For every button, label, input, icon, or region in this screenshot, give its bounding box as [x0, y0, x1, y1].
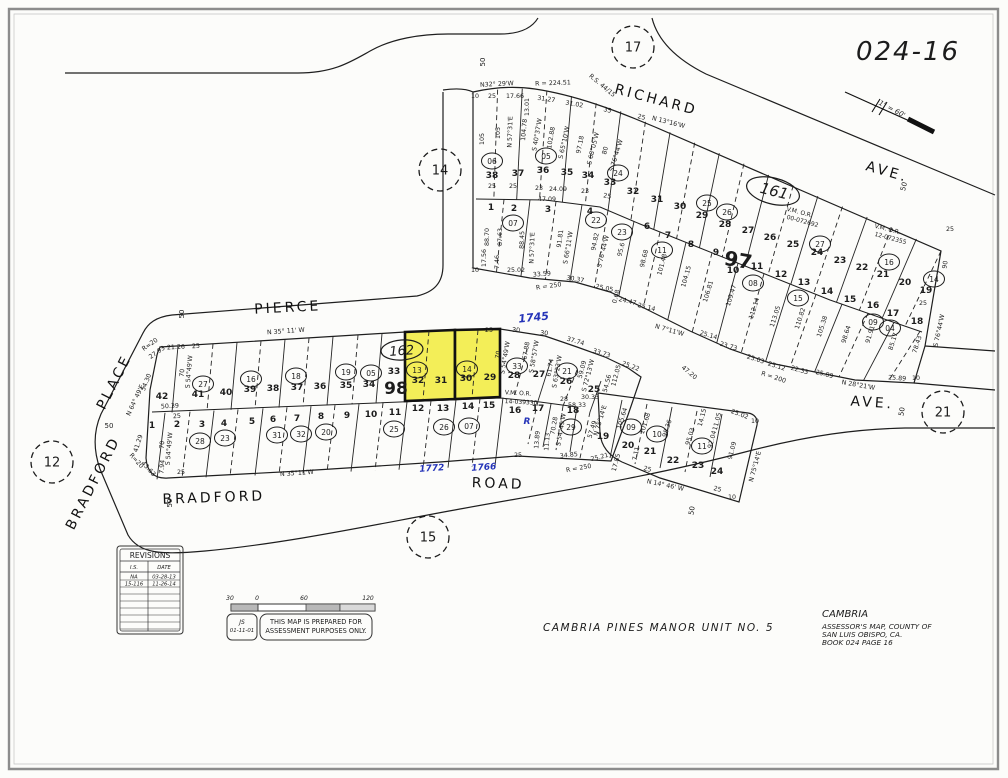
dimension-label: 30.37 [566, 275, 585, 285]
dimension-label: 43.63 [139, 460, 156, 478]
lot-number: 31 [435, 376, 448, 386]
dimension-label: 87.63 [497, 228, 504, 246]
dimension-label: 25.02 [507, 267, 525, 274]
dimension-label: 30 [540, 330, 549, 338]
parcel-number: 16 [246, 375, 256, 384]
lot-number: 30 [674, 202, 687, 212]
dimension-label: 91.09 [727, 441, 738, 460]
road-width-label: 50 [687, 506, 696, 516]
road-width-label: 50 [166, 499, 174, 508]
dimension-label: 109.47 [725, 284, 738, 307]
dimension-label: 21.26 [167, 344, 185, 352]
revision-row-date: 11-26-14 [152, 582, 176, 588]
agency-name: CAMBRIA [822, 609, 868, 620]
road-width-label: 50 [899, 181, 909, 192]
dimension-label: 23.73 [719, 341, 738, 353]
lot-number: 20 [622, 441, 635, 451]
lot-boundary-line [303, 406, 311, 473]
parcel-number: 10 [652, 430, 662, 439]
dimension-label: 112.05 [610, 364, 622, 387]
road-width-label: 50 [897, 407, 906, 417]
dimension-label: R = 200 [760, 370, 787, 385]
lot-number: 12 [775, 270, 788, 280]
street-label: ROAD [471, 475, 524, 493]
dimension-label: 33.59 [533, 270, 551, 278]
dimension-label: 95.03 [684, 427, 696, 446]
parcel-number: 07 [464, 422, 474, 431]
dimension-label: N 57°31'E [505, 116, 514, 148]
dimension-label: 41.29 [132, 434, 144, 453]
lot-number: 7 [665, 231, 671, 241]
lot-boundary-line [230, 409, 238, 476]
revisions-col-is: I.S. [130, 565, 138, 571]
lot-boundary-line [327, 337, 333, 406]
map-title: CAMBRIA PINES MANOR UNIT NO. 5 [543, 622, 774, 634]
lot-number: 13 [437, 404, 450, 414]
dimension-label: 98.68 [639, 249, 650, 268]
parcel-number: 11 [697, 442, 707, 451]
dimension-label: 25 [173, 413, 181, 420]
lot-number: 42 [156, 392, 169, 402]
assessor-map-page: 1" = 60' 024-16 CAMBRIA PINES MANOR UNIT… [0, 0, 1008, 778]
lot-boundary-line [677, 143, 695, 239]
lot-number: 21 [877, 270, 890, 280]
dimension-label: 98.64 [840, 325, 852, 344]
lot-boundary-line [654, 132, 670, 229]
lot-number: 1 [488, 203, 494, 213]
parcel-number: 09 [868, 318, 878, 327]
lot-number: 15 [844, 295, 857, 305]
dimension-label: 106.81 [702, 280, 715, 303]
parcel-number: 29 [566, 423, 576, 432]
lot-number: 16 [867, 301, 880, 311]
scale-tick: 30 [226, 595, 234, 602]
parcel-number: 16 [884, 258, 894, 267]
dimension-label: 30 [512, 327, 520, 334]
dimension-label: 13.89 [533, 431, 542, 450]
lot-boundary-line [351, 404, 359, 472]
dimension-label: 25 [485, 327, 493, 334]
dimension-label: 17.56 [481, 249, 488, 267]
dimension-label: 105 [479, 133, 486, 145]
lot-number: 40 [220, 388, 233, 398]
scale-tick: 60 [300, 595, 308, 602]
dimension-label: 7.11 [632, 446, 642, 461]
dimension-label: 88.45 [519, 231, 527, 249]
dimension-label: 11.13 [543, 433, 552, 452]
dimension-label: 25.02 [730, 408, 749, 421]
dimension-label: 28 [560, 396, 568, 403]
dimension-label: 25.14 [637, 302, 656, 313]
parcel-number: 31 [272, 431, 282, 440]
revisions-col-date: DATE [157, 565, 171, 571]
dimension-label: 97.18 [575, 135, 586, 154]
lot-number: 37 [512, 169, 525, 179]
dimension-label: 23 [535, 185, 543, 192]
lot-boundary-line [279, 340, 285, 408]
lot-number: 12 [412, 404, 425, 414]
dimension-label: 112.14 [748, 297, 761, 320]
dimension-label: N 7°11'W [654, 322, 686, 338]
lot-number: 18 [911, 317, 924, 327]
lot-number: 34 [363, 380, 376, 390]
parcel-number: 33 [512, 362, 522, 371]
street-label: PIERCE [254, 298, 322, 317]
dimension-label: S 68°05'W [585, 131, 601, 166]
dimension-label: 25.12 [767, 360, 786, 372]
dimension-label: 7.46 [494, 255, 501, 269]
dimension-label: 10 [912, 375, 920, 382]
revision-row-is: 15-116 [125, 582, 144, 588]
lot-number: 6 [644, 222, 650, 232]
dimension-label: 25 [946, 226, 954, 233]
road-edge-east-2 [914, 383, 995, 390]
page-border [9, 9, 998, 769]
block-number: 162 [389, 343, 415, 360]
revisions-title: REVISIONS [130, 551, 171, 560]
lot-boundary-line [352, 335, 358, 404]
north-arrow-scale: 1" = 60' [877, 99, 906, 120]
dimension-label: N 35°11'W [280, 468, 315, 478]
lot-number: 31 [651, 195, 664, 205]
map-junction-number: 14 [432, 164, 449, 179]
dimension-label: 47.09 [538, 196, 556, 203]
dimension-label: 13.01 [524, 98, 531, 116]
lot-number: 37 [291, 383, 304, 393]
disclaimer-line-1: THIS MAP IS PREPARED FOR [269, 618, 362, 626]
parcel-number: 26 [439, 423, 449, 432]
lot-number: 25 [787, 240, 800, 250]
lot-number: 8 [688, 240, 694, 250]
dimension-label: 105.38 [816, 315, 829, 338]
lot-number: 11 [389, 408, 402, 418]
parcel-number: 28 [195, 437, 205, 446]
lot-number: 20 [899, 278, 912, 288]
sheet-number: 024-16 [856, 37, 960, 67]
dimension-label: 23 [581, 188, 589, 195]
dimension-label: 25 [713, 485, 722, 494]
lot-number: 24 [711, 467, 724, 477]
lot-number: 6 [270, 415, 276, 425]
assessor-map-canvas: 1" = 60' 024-16 CAMBRIA PINES MANOR UNIT… [0, 0, 1008, 778]
dimension-label: 10 [728, 494, 736, 501]
map-junction-number: 21 [935, 406, 952, 421]
lot-number: 3 [545, 205, 551, 215]
lot-number: 9 [344, 411, 350, 421]
street-label: RICHARD [613, 81, 699, 119]
parcel-number: 05 [541, 152, 551, 161]
dimension-label: 25.21 [590, 452, 609, 463]
lot-number: 11 [751, 262, 764, 272]
lot-number: 33 [388, 367, 401, 377]
lot-number: 17 [887, 309, 900, 319]
dimension-label: 33.73 [592, 347, 611, 359]
parcel-number: 08 [748, 279, 758, 288]
parcel-number: 23 [220, 434, 230, 443]
dimension-label: 47.20 [680, 364, 698, 381]
scale-tick: 120 [362, 595, 374, 602]
parcel-number: 27 [198, 380, 208, 389]
parcel-number: 15 [793, 294, 803, 303]
dimension-label: 25.89 [888, 374, 906, 382]
parcel-number: 23 [617, 228, 627, 237]
dimension-label: 78.43 [911, 335, 923, 354]
parcel-number: 13 [412, 366, 422, 375]
road-width-label: 50 [105, 422, 114, 430]
lot-number: 26 [764, 233, 777, 243]
lot-number: 28 [508, 371, 521, 381]
dimension-label: 25 [514, 452, 522, 459]
lot-number: 36 [314, 382, 327, 392]
map-junction-number: 17 [625, 41, 642, 56]
dimension-label: 25 [488, 93, 496, 100]
dimension-label: 25 [488, 183, 496, 190]
lot-boundary-line [839, 313, 868, 377]
lot-number: 2 [511, 204, 517, 214]
parcel-number: 26 [722, 208, 732, 217]
dimension-label: 10 [471, 93, 479, 100]
dimension-label: 22.33 [790, 365, 809, 377]
lot-number: 32 [627, 187, 640, 197]
dimension-label: N 57°31'E [527, 232, 536, 264]
parcel-number: 27 [815, 240, 825, 249]
dimension-label: 113.05 [769, 305, 782, 328]
parcel-number: 20 [321, 428, 331, 437]
revision-row-date: 03-28-13 [152, 575, 176, 581]
dimension-label: N 35° 11' W [267, 326, 306, 337]
block-number: 97 [722, 246, 754, 274]
lot-number: 15 [483, 401, 496, 411]
lot-number: 23 [834, 256, 847, 266]
lot-number: 29 [696, 211, 709, 221]
dimension-label: 88.70 [484, 228, 491, 246]
road-width-label: 50 [479, 58, 487, 67]
parcel-number: 09 [626, 423, 636, 432]
dimension-label: 35 [603, 106, 612, 115]
parcel-number: 18 [291, 372, 301, 381]
dimension-label: S 40°37'W [530, 117, 544, 152]
parcel-number: 24 [613, 169, 623, 178]
lot-number: 5 [249, 417, 255, 427]
dimension-label: 94.82 [590, 232, 601, 251]
lot-number: 21 [644, 447, 657, 457]
dimension-label: 25 [919, 300, 927, 307]
dimension-label: 85.17 [887, 332, 899, 351]
parcel-number: 25 [389, 425, 399, 434]
dimension-label: 7.94 [158, 460, 166, 475]
lot-number: 33 [604, 178, 617, 188]
lot-number: 14 [821, 287, 834, 297]
lot-number: 1 [149, 421, 155, 431]
lot-boundary-line [279, 407, 287, 474]
map-junction-number: 15 [420, 531, 437, 546]
lot-number: 35 [561, 168, 574, 178]
dimension-label: 80 [601, 146, 610, 156]
lot-number: 28 [719, 220, 732, 230]
lot-number: 23 [692, 461, 705, 471]
lot-number: 22 [856, 263, 869, 273]
lot-number: 19 [920, 286, 933, 296]
parcel-number: 06 [487, 157, 497, 166]
lot-number: 3 [199, 420, 205, 430]
lot-number: 38 [486, 171, 499, 181]
road-edge-connector [443, 89, 473, 92]
block-number: 98 [384, 379, 408, 399]
dimension-label: 14.15 [697, 408, 708, 427]
lot-number: 13 [798, 278, 811, 288]
dimension-label: 25.03 [746, 353, 765, 365]
dimension-label: 110.82 [794, 307, 807, 330]
lot-number: 8 [318, 412, 324, 422]
dimension-label: 104.78 [520, 119, 529, 142]
lot-number: 22 [667, 456, 680, 466]
dimension-label: 25 [603, 192, 612, 200]
lot-number: 2 [174, 420, 180, 430]
dimension-label: 10 [751, 418, 759, 425]
dimension-label: 25.22 [621, 360, 640, 373]
street-label: PLACE [94, 352, 135, 412]
dimension-label: S 65°10'W [557, 125, 572, 160]
dimension-label: 102.88 [546, 126, 557, 149]
dimension-label: 25.89 [815, 369, 834, 380]
parcel-number: 21 [562, 367, 572, 376]
lot-number: 29 [484, 373, 497, 383]
dimension-label: 58.33 [568, 402, 586, 409]
lot-number: 16 [509, 406, 522, 416]
lot-number: 34 [582, 171, 595, 181]
handwritten-annotation: R [524, 417, 531, 427]
dimension-label: 25 [192, 343, 200, 350]
dimension-label: R = 250 [536, 281, 562, 292]
lot-number: 4 [221, 419, 227, 429]
lot-number: 10 [365, 410, 378, 420]
agency-line-3: BOOK 024 PAGE 16 [822, 638, 893, 647]
parcel-number: 22 [591, 216, 601, 225]
lot-number: 35 [340, 381, 353, 391]
dimension-label: R = 224.51 [535, 79, 571, 87]
lot-boundary-line [495, 398, 503, 466]
lot-number: 27 [742, 226, 755, 236]
lot-boundary-line [231, 342, 237, 409]
lot-number: 36 [537, 166, 550, 176]
dimension-label: 24.09 [549, 186, 567, 193]
revision-row-is: NA [130, 575, 138, 581]
dimension-label: R = 250 [565, 463, 592, 474]
dimension-label: 31.27 [537, 95, 556, 104]
handwritten-annotation: 1772 [419, 463, 445, 475]
dimension-label: 30.33 [581, 394, 599, 401]
street-label: BRADFORD [162, 488, 265, 508]
parcel-number: 04 [885, 324, 895, 333]
dimension-label: 25 [509, 183, 517, 190]
scale-tick: 0 [255, 595, 259, 602]
lot-number: 14 [462, 402, 475, 412]
dimension-label: 37.74 [566, 336, 585, 348]
dimension-label: S 76°44'W [932, 313, 947, 348]
parcel-number: 11 [657, 246, 667, 255]
dimension-label: 91.81 [556, 229, 565, 248]
block-number: 161 [758, 179, 790, 203]
lot-boundary-line [303, 338, 309, 407]
stamp-initials: JS [238, 619, 245, 626]
handwritten-annotation: 1745 [518, 309, 550, 325]
parcel-number: 14 [929, 275, 939, 284]
dimension-label: R.S. 44/15 [587, 73, 616, 99]
parcel-number: 07 [508, 219, 518, 228]
street-label: AVE. [850, 394, 895, 413]
lot-boundary-line [255, 408, 263, 475]
dimension-label: 25.05 [595, 283, 614, 294]
map-junction-number: 12 [44, 456, 61, 471]
dimension-label: 25 [177, 469, 185, 476]
disclaimer-line-2: ASSESSMENT PURPOSES ONLY. [265, 627, 366, 635]
initials-stamp-box [227, 614, 257, 640]
dimension-label: 31.02 [565, 100, 584, 110]
stamp-date: 01-11-01 [230, 628, 254, 634]
dimension-label: 10 [471, 267, 479, 274]
dimension-label: 50.39 [161, 403, 179, 411]
dimension-label: 25 [643, 465, 652, 474]
dimension-label: 104.15 [680, 265, 693, 288]
parcel-number: 19 [341, 368, 351, 377]
lot-number: 9 [713, 248, 719, 258]
lot-boundary-line [815, 304, 842, 372]
handwritten-annotation: 1766 [471, 462, 497, 474]
dimension-label: 101.48 [656, 253, 668, 276]
dimension-label: 95.6 [616, 242, 626, 257]
parcel-number: 25 [702, 199, 712, 208]
lot-boundary-line [631, 122, 646, 220]
lot-number: 38 [267, 384, 280, 394]
lot-number: 7 [294, 414, 300, 424]
road-edge-northwest [65, 18, 538, 73]
dimension-label: 24.47 [618, 296, 637, 307]
lot-boundary-line [517, 89, 523, 200]
dimension-label: N 64° 49'E [124, 383, 145, 417]
parcel-number: 32 [296, 430, 306, 439]
parcel-number: 14 [462, 365, 472, 374]
dimension-label: 17.66 [506, 93, 524, 100]
dimension-label: 90 [941, 260, 949, 269]
scale-bar [231, 604, 375, 611]
recorder-note: V.M. O.R. [505, 389, 532, 397]
road-width-label: 50 [178, 310, 186, 319]
page-border-inner [14, 14, 993, 764]
parcel-number: 05 [366, 369, 376, 378]
dimension-label: 11.05 [712, 412, 723, 431]
dimension-label: 105 [495, 127, 502, 139]
street-label: BRADFORD [63, 434, 124, 533]
